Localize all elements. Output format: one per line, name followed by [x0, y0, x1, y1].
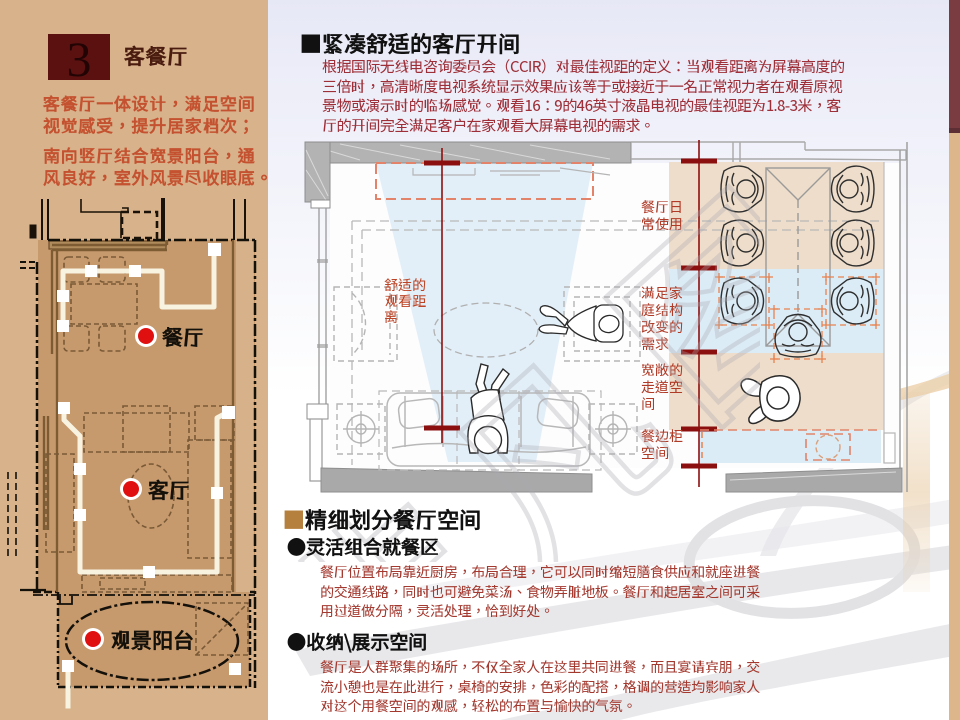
svg-text:离: 离: [384, 307, 398, 327]
svg-text:需求: 需求: [641, 334, 669, 354]
svg-text:常使用: 常使用: [641, 214, 683, 234]
svg-text:间: 间: [641, 394, 655, 414]
svg-text:空间: 空间: [641, 443, 669, 463]
